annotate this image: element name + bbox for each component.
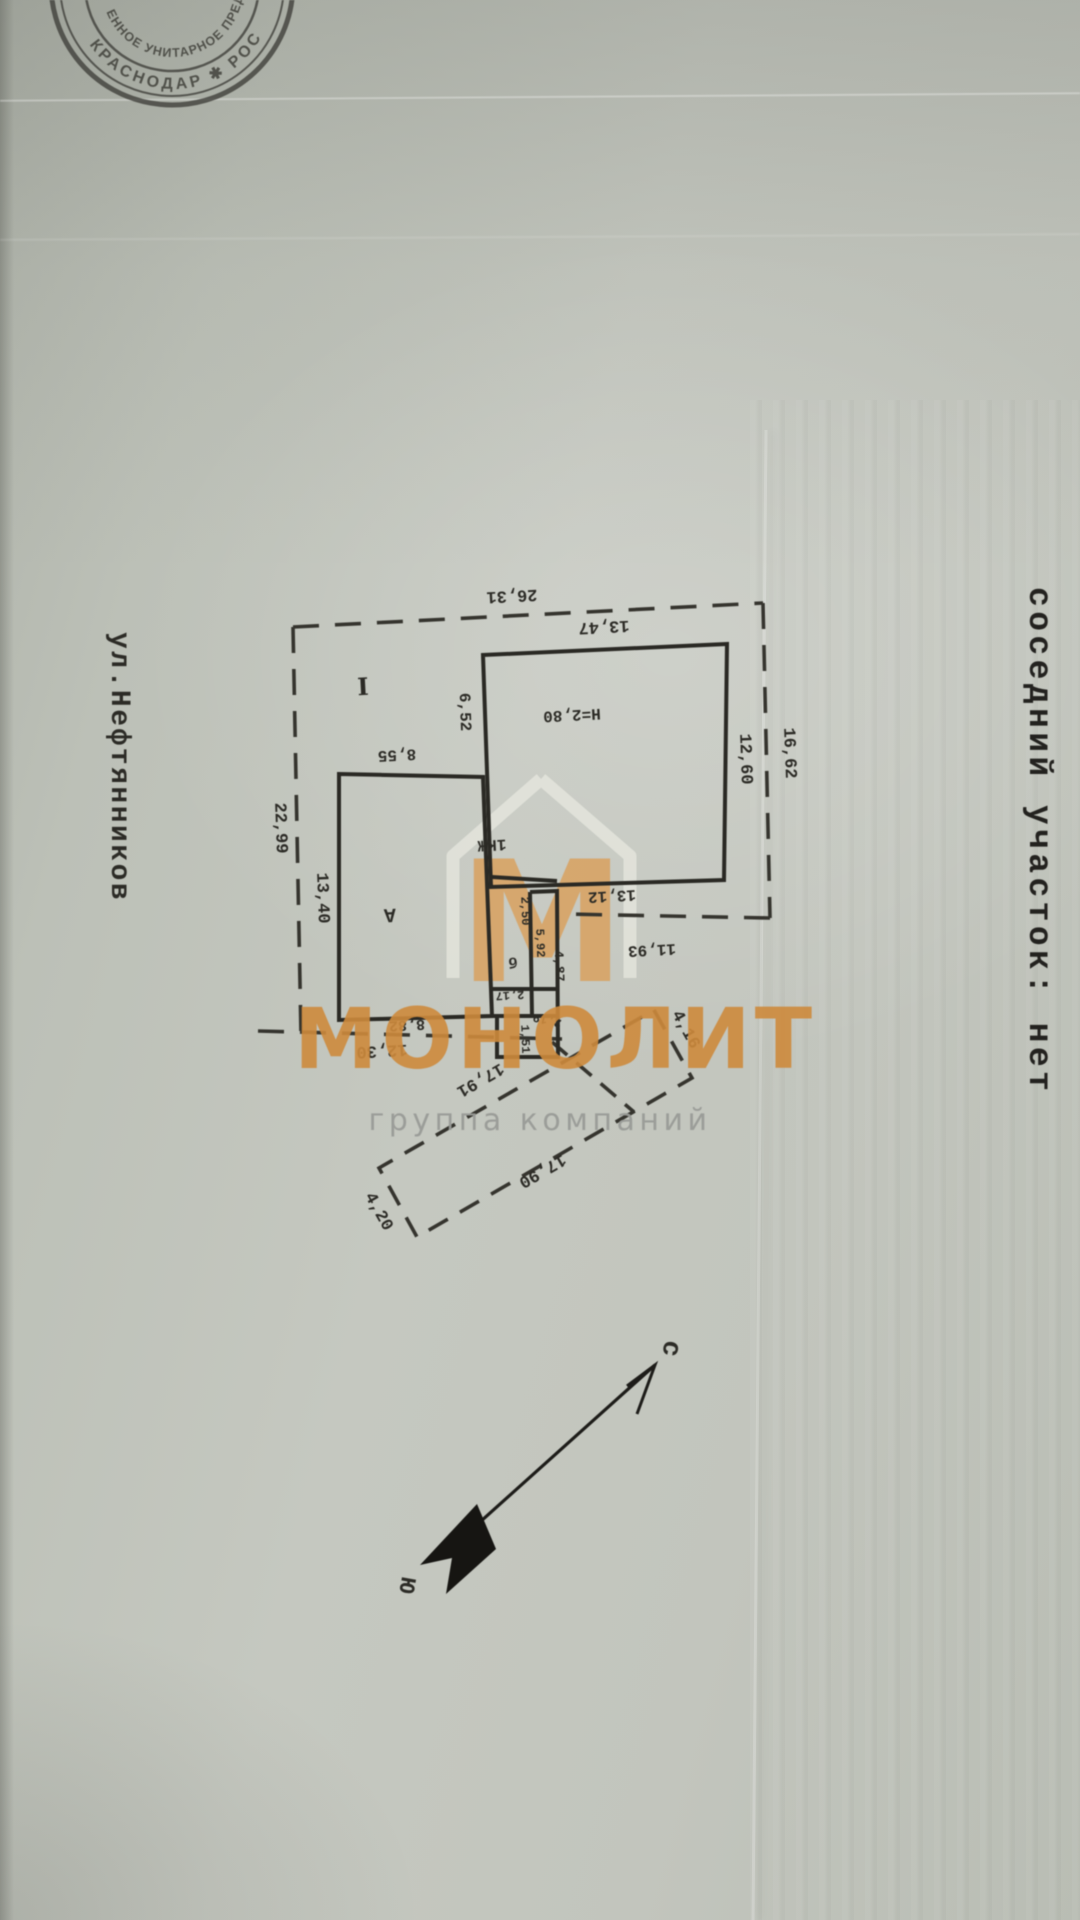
plan-label: 4,87 bbox=[551, 950, 567, 982]
round-stamp: КРАСНОДАР ✱ РОС ЕННОЕ УНИТАРНОЕ ПРЕД bbox=[22, 0, 321, 134]
plan-label: Н=2,80 bbox=[543, 704, 601, 725]
plan-label: 13,12 bbox=[587, 885, 636, 905]
plan-label: 13,47 bbox=[578, 615, 630, 637]
plan-label: 22,99 bbox=[269, 802, 290, 854]
plan-label: 12,60 bbox=[734, 733, 755, 785]
plan-label: 11,93 bbox=[627, 939, 676, 959]
plan-label: 8,55 bbox=[377, 744, 416, 764]
plan-label: соседний участок: нет bbox=[1020, 587, 1057, 1095]
plan-label: 5,92 bbox=[532, 928, 547, 957]
plan-label: 6,52 bbox=[455, 693, 474, 732]
plan-label: б bbox=[508, 953, 518, 970]
plan-label: ул.Нефтянников bbox=[103, 632, 134, 902]
plan-label: ю bbox=[390, 1575, 422, 1596]
plan-label: 4,20 bbox=[360, 1190, 396, 1235]
watermark-subtitle: группа компаний bbox=[369, 1103, 712, 1138]
dimension-labels: 26,3113,4716,6212,60Н=2,806,528,5522,991… bbox=[103, 584, 1057, 1596]
plan-label: 16,62 bbox=[778, 727, 799, 779]
north-arrow bbox=[420, 1365, 655, 1594]
plan-label: I bbox=[357, 671, 370, 701]
scanned-document-page: КРАСНОДАР ✱ РОС ЕННОЕ УНИТАРНОЕ ПРЕД М bbox=[0, 0, 1080, 1920]
plan-label: 26,31 bbox=[486, 584, 538, 606]
watermark-title: МОНОЛИТ bbox=[294, 990, 816, 1088]
plan-label: с bbox=[653, 1338, 685, 1359]
plan-label: 2,50 bbox=[517, 896, 532, 925]
plan-label: А bbox=[383, 902, 396, 926]
plan-label: 13,40 bbox=[311, 872, 332, 924]
plan-label: 17,90 bbox=[515, 1149, 569, 1191]
plan-label: 1КЖ bbox=[477, 835, 507, 855]
site-plan-drawing: КРАСНОДАР ✱ РОС ЕННОЕ УНИТАРНОЕ ПРЕД М bbox=[0, 0, 1080, 1920]
